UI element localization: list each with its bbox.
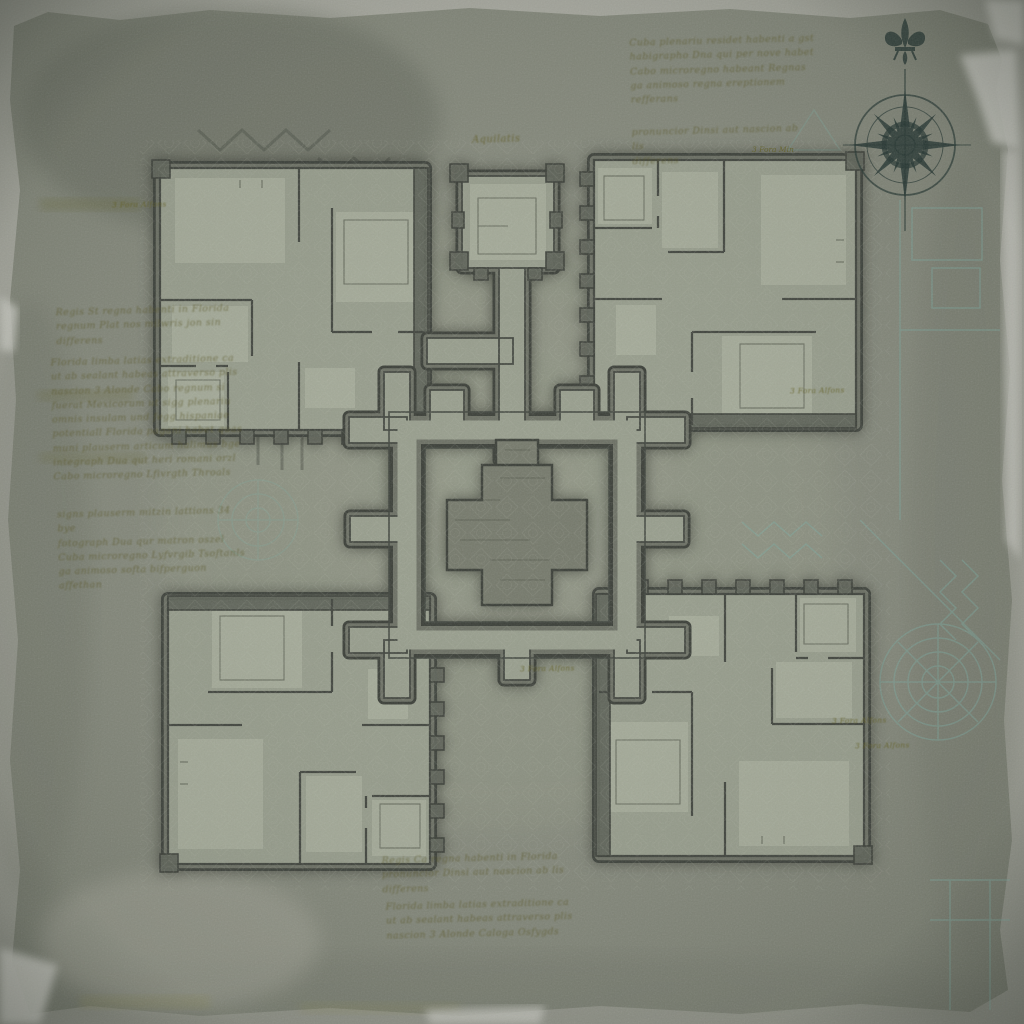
map-canvas: 3 Fora Min <box>0 0 1024 1024</box>
scale-label: 3 Fora Min <box>752 145 794 154</box>
vignette <box>0 0 1024 1024</box>
parchment-map: 3 Fora Min Aquilatis Cuba plenariu resid… <box>0 0 1024 1024</box>
scale-labels: 3 Fora Min <box>752 145 794 154</box>
